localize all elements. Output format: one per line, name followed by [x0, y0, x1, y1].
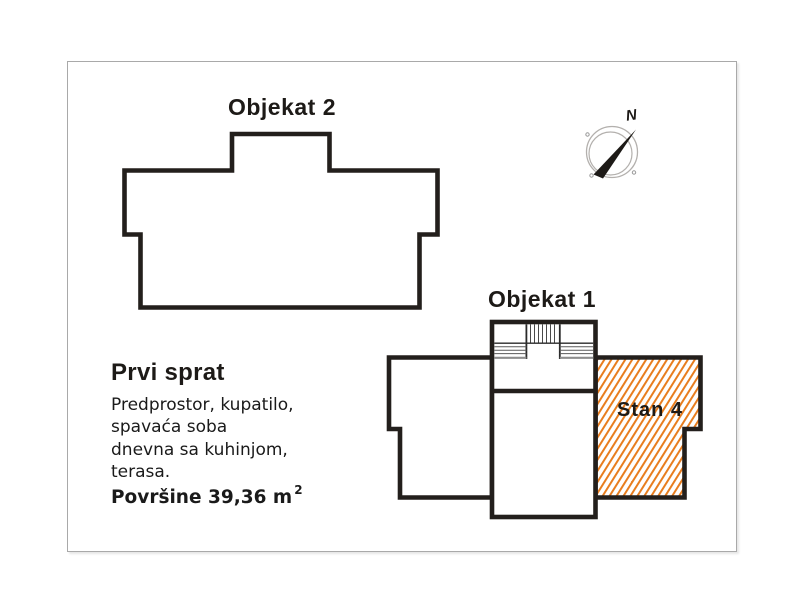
compass-rose-icon	[586, 127, 638, 179]
rooms-line: Predprostor, kupatilo,	[111, 394, 294, 416]
compass-north-label: N	[625, 106, 638, 124]
page-background: Objekat 2 Objekat 1 Stan 4 Prvi sprat Pr…	[0, 0, 800, 600]
stan4-label[interactable]: Stan 4	[610, 399, 690, 422]
area-text: Površine 39,36 m	[111, 487, 292, 508]
rooms-description: Predprostor, kupatilo, spavaća soba dnev…	[111, 394, 294, 483]
objekat1-central-block	[492, 322, 596, 517]
objekat2-title: Objekat 2	[227, 94, 337, 121]
objekat2-outline	[125, 134, 438, 308]
rooms-line: terasa.	[111, 461, 294, 483]
area-value: Površine 39,36 m2	[111, 485, 301, 508]
area-superscript: 2	[294, 483, 302, 497]
rooms-line: spavaća soba	[111, 416, 294, 438]
objekat1-title: Objekat 1	[487, 286, 597, 313]
stan4-area[interactable]	[596, 358, 701, 498]
rooms-line: dnevna sa kuhinjom,	[111, 439, 294, 461]
floor-title: Prvi sprat	[111, 359, 225, 387]
floor-plan-drawing	[0, 0, 800, 600]
objekat1-left-wing	[389, 358, 492, 498]
